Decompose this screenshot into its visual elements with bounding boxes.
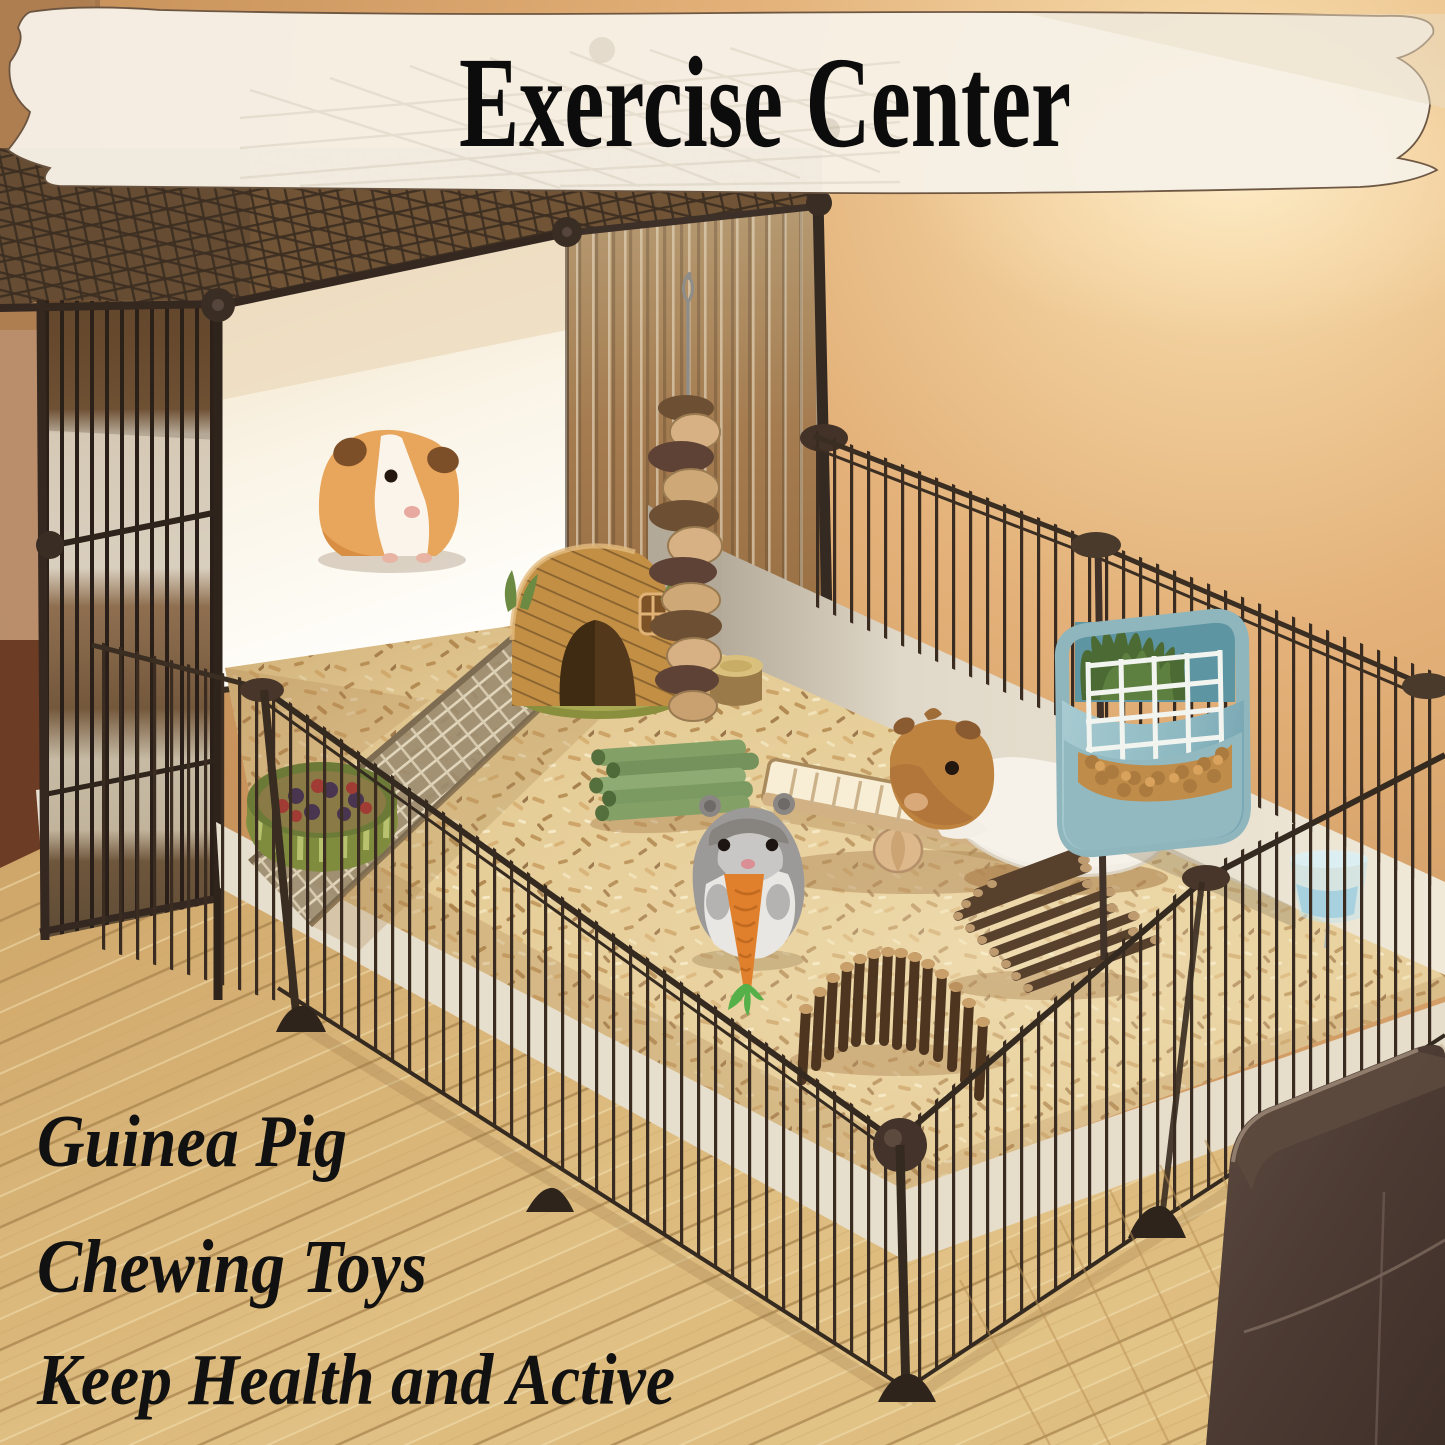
- svg-text:Guinea Pig: Guinea Pig: [37, 1101, 347, 1183]
- svg-text:Chewing Toys: Chewing Toys: [37, 1225, 427, 1309]
- svg-text:Exercise Center: Exercise Center: [459, 31, 1071, 175]
- svg-text:Keep Health and Active: Keep Health and Active: [36, 1339, 675, 1420]
